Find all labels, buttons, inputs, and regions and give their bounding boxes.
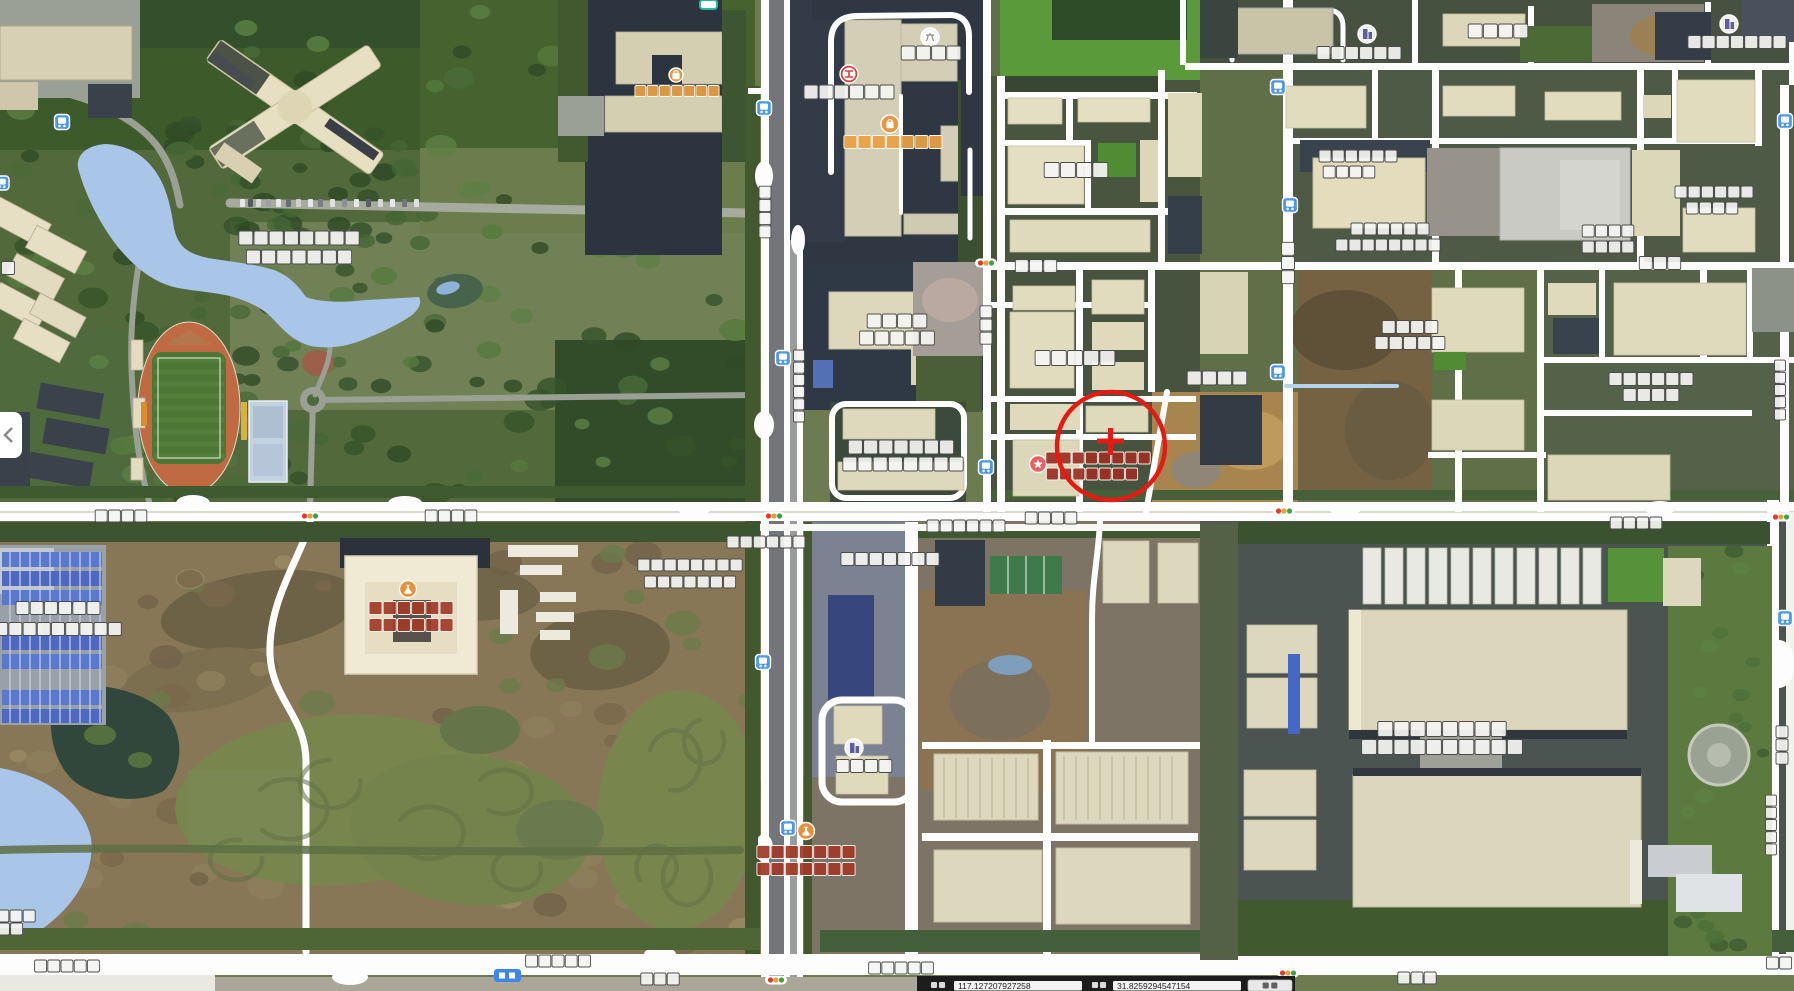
svg-text:31.8259294547154: 31.8259294547154 [1117, 981, 1191, 991]
svg-text:117.127207927258: 117.127207927258 [958, 981, 1031, 991]
